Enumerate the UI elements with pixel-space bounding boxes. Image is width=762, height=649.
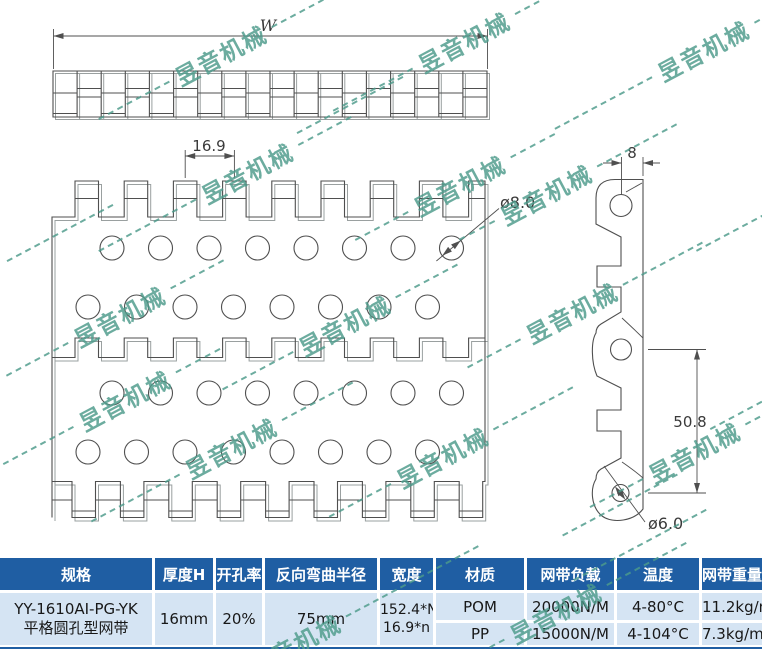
col-header-bend-radius: 反向弯曲半径 (265, 558, 377, 590)
spec-type-name: 平格圆孔型网带 (0, 619, 152, 639)
belt-drawing-page: W 16.9 ø8.0 8 50.8 ø6.0 昱音机械昱音机械昱音机械昱音机械… (0, 0, 762, 649)
dim-small-hole-label: ø6.0 (648, 514, 683, 533)
width-formula-line2: 16.9*n (380, 619, 433, 637)
dimension-arrowhead (54, 33, 64, 39)
dim-pitch-label: 16.9 (192, 137, 225, 155)
belt-round-hole (149, 236, 173, 260)
belt-plan-view (52, 181, 488, 521)
belt-edge-view (53, 71, 490, 120)
width-formula-line1: 152.4*N+ (380, 601, 433, 619)
plan-interlock-seam (52, 338, 485, 358)
dimension-arrowhead (694, 483, 700, 493)
belt-round-hole (197, 236, 221, 260)
temperature-cell: 4-104°C (617, 623, 699, 645)
belt-round-hole (294, 236, 318, 260)
weight-cell: 7.3kg/m² (702, 623, 762, 645)
belt-round-hole (100, 381, 124, 405)
belt-round-hole (319, 295, 343, 319)
belt-round-hole (222, 440, 246, 464)
dim-width-label: W (260, 16, 278, 35)
belt-round-hole (416, 440, 440, 464)
belt-round-hole (391, 381, 415, 405)
dim-hole-dia-label: ø8.0 (500, 193, 535, 212)
technical-drawing: W 16.9 ø8.0 8 50.8 ø6.0 (0, 0, 762, 558)
belt-round-hole (125, 295, 149, 319)
belt-round-hole (391, 236, 415, 260)
dimension-arrowhead (643, 160, 653, 166)
belt-round-hole (197, 381, 221, 405)
table-header-row: 规格 厚度H 开孔率 反向弯曲半径 宽度 材质 网带负载 温度 网带重量 (0, 558, 762, 590)
thickness-cell: 16mm (155, 593, 213, 645)
bend-radius-cell: 75mm (265, 593, 377, 645)
belt-round-hole (440, 381, 464, 405)
side-top-hinge-hole (610, 195, 632, 217)
material-cell: POM (436, 593, 524, 620)
belt-round-hole (319, 440, 343, 464)
belt-round-hole (416, 295, 440, 319)
weight-cell: 11.2kg/m² (702, 593, 762, 620)
belt-round-hole (343, 381, 367, 405)
belt-round-hole (246, 236, 270, 260)
side-link-hook-lines (622, 183, 643, 478)
plan-outline (52, 181, 485, 518)
belt-round-hole (149, 381, 173, 405)
side-middle-hinge-hole (611, 339, 632, 360)
specification-table: 规格 厚度H 开孔率 反向弯曲半径 宽度 材质 网带负载 温度 网带重量 YY-… (0, 555, 762, 648)
belt-round-hole (270, 440, 294, 464)
belt-round-hole (343, 236, 367, 260)
strip-shadow-lines (56, 74, 490, 120)
belt-round-hole (76, 295, 100, 319)
dimension-arrowhead (185, 153, 195, 159)
belt-round-hole (367, 440, 391, 464)
col-header-thickness: 厚度H (155, 558, 213, 590)
dimension-arrowhead (612, 160, 622, 166)
dim-link-span-label: 50.8 (673, 413, 706, 431)
belt-round-hole (367, 295, 391, 319)
spec-model: YY-1610AI-PG-YK (0, 600, 152, 620)
table-row: YY-1610AI-PG-YK 平格圆孔型网带 16mm 20% 75mm 15… (0, 593, 762, 620)
belt-round-hole (246, 381, 270, 405)
belt-side-link-view (592, 180, 643, 521)
belt-round-hole (270, 295, 294, 319)
dim-edge-label: 8 (627, 144, 637, 162)
dimension-arrowhead (224, 153, 234, 159)
strip-grid-lines (53, 71, 487, 117)
belt-round-hole (125, 440, 149, 464)
plan-tooth-step-lines (52, 199, 485, 512)
belt-round-hole (173, 440, 197, 464)
dimension-arrowhead (478, 33, 488, 39)
load-cell: 15000N/M (527, 623, 614, 645)
col-header-width: 宽度 (380, 558, 433, 590)
belt-round-hole (100, 236, 124, 260)
col-header-load: 网带负载 (527, 558, 614, 590)
side-link-outline (592, 180, 643, 521)
belt-round-hole (76, 440, 100, 464)
spec-cell: YY-1610AI-PG-YK 平格圆孔型网带 (0, 593, 152, 645)
col-header-weight: 网带重量 (702, 558, 762, 590)
belt-round-hole (294, 381, 318, 405)
col-header-material: 材质 (436, 558, 524, 590)
belt-round-hole (222, 295, 246, 319)
load-cell: 20000N/M (527, 593, 614, 620)
width-formula-cell: 152.4*N+ 16.9*n (380, 593, 433, 645)
temperature-cell: 4-80°C (617, 593, 699, 620)
col-header-temperature: 温度 (617, 558, 699, 590)
dimension-arrowhead (694, 350, 700, 360)
open-rate-cell: 20% (216, 593, 262, 645)
col-header-open-rate: 开孔率 (216, 558, 262, 590)
belt-round-hole (173, 295, 197, 319)
material-cell: PP (436, 623, 524, 645)
col-header-spec: 规格 (0, 558, 152, 590)
